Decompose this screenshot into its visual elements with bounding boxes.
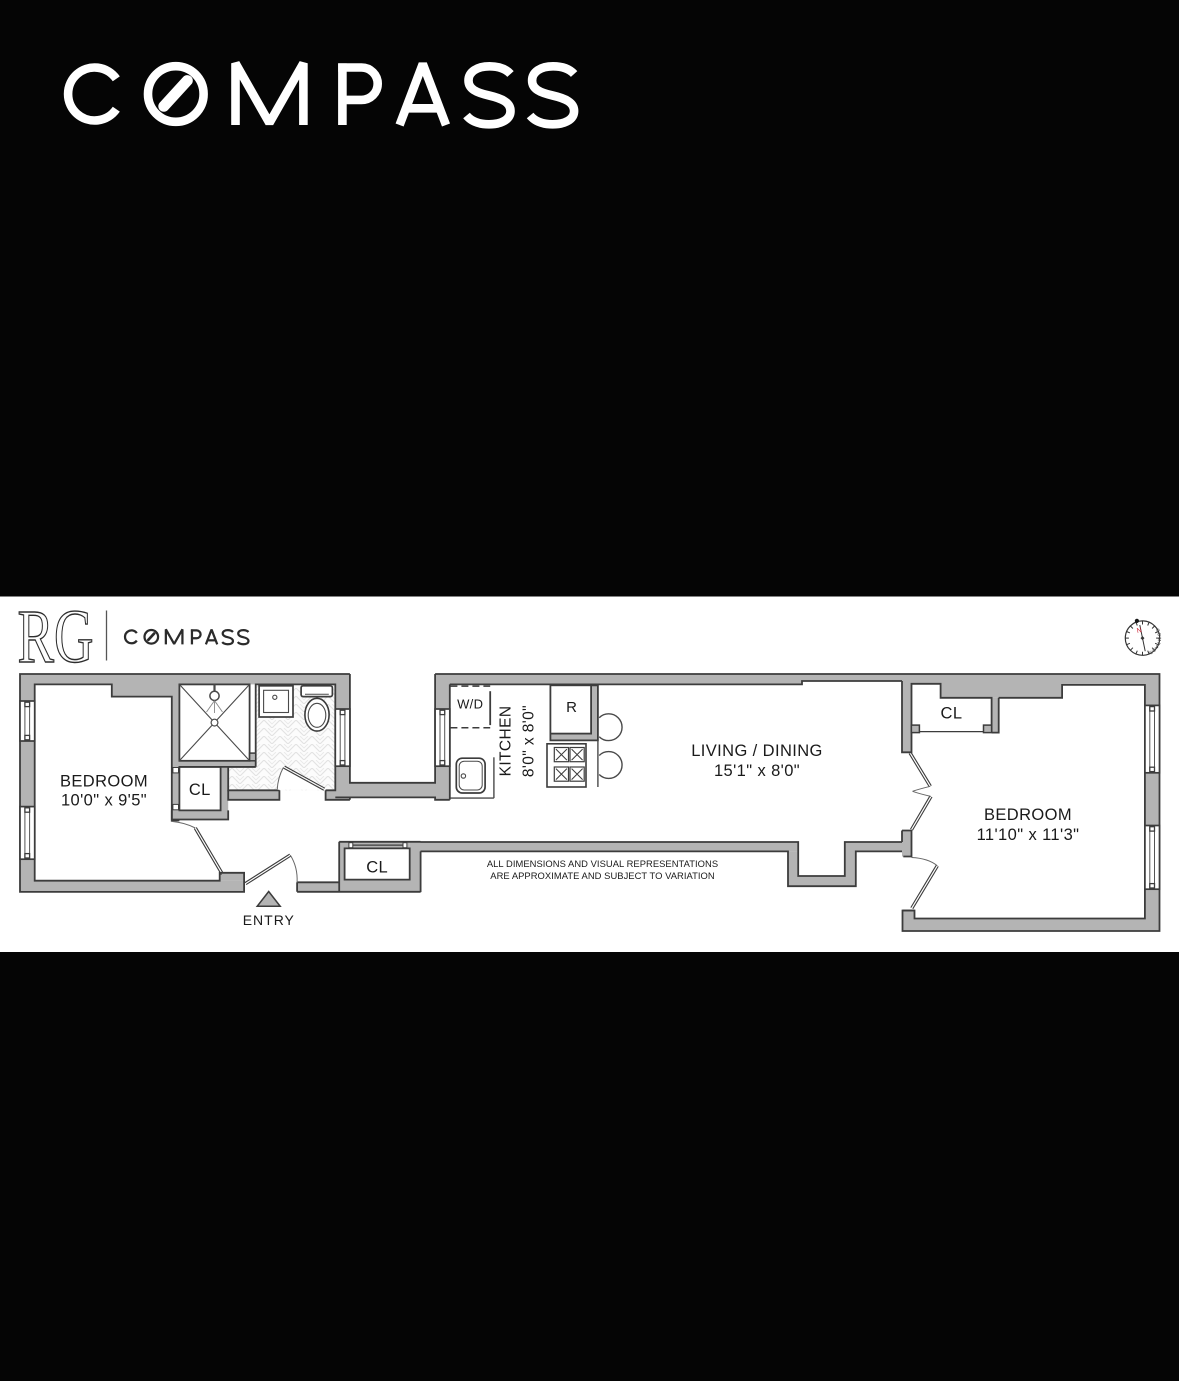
svg-text:ENTRY: ENTRY <box>243 912 295 928</box>
svg-text:LIVING / DINING: LIVING / DINING <box>691 742 823 760</box>
svg-text:10'0" x 9'5": 10'0" x 9'5" <box>61 792 147 810</box>
svg-text:15'1" x 8'0": 15'1" x 8'0" <box>714 762 800 780</box>
svg-text:ARE APPROXIMATE AND SUBJECT TO: ARE APPROXIMATE AND SUBJECT TO VARIATION <box>490 870 714 881</box>
svg-text:W/D: W/D <box>457 697 483 712</box>
svg-text:BEDROOM: BEDROOM <box>984 806 1072 824</box>
svg-text:CL: CL <box>941 705 963 723</box>
svg-text:8'0" x 8'0": 8'0" x 8'0" <box>521 705 538 777</box>
svg-text:BEDROOM: BEDROOM <box>60 773 148 791</box>
svg-text:CL: CL <box>366 859 388 877</box>
svg-text:11'10" x 11'3": 11'10" x 11'3" <box>977 826 1080 844</box>
svg-text:RG: RG <box>18 595 94 679</box>
svg-text:KITCHEN: KITCHEN <box>498 706 515 777</box>
svg-text:CL: CL <box>189 781 211 799</box>
svg-text:R: R <box>566 699 577 716</box>
svg-text:ALL DIMENSIONS AND VISUAL REPR: ALL DIMENSIONS AND VISUAL REPRESENTATION… <box>487 858 718 869</box>
